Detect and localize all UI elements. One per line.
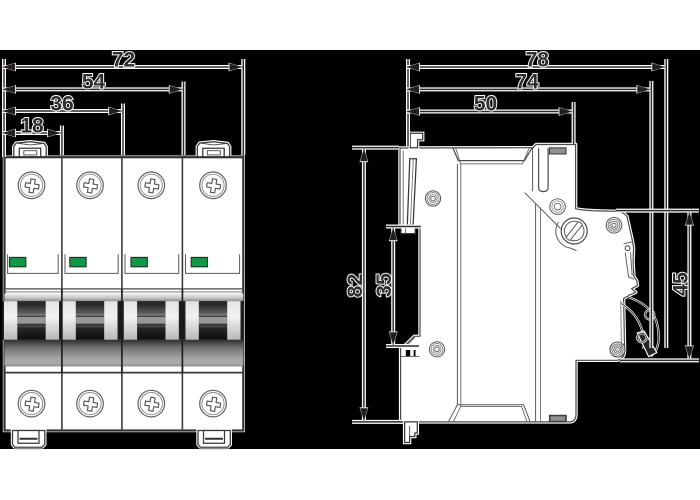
svg-text:78: 78 — [526, 48, 550, 71]
svg-text:74: 74 — [515, 71, 539, 94]
svg-text:35: 35 — [372, 273, 396, 297]
svg-text:72: 72 — [112, 48, 135, 71]
svg-text:36: 36 — [50, 92, 73, 115]
svg-text:45: 45 — [669, 272, 693, 296]
svg-text:54: 54 — [82, 71, 106, 94]
svg-text:18: 18 — [20, 114, 44, 137]
svg-text:50: 50 — [474, 92, 497, 115]
svg-text:82: 82 — [343, 274, 367, 298]
